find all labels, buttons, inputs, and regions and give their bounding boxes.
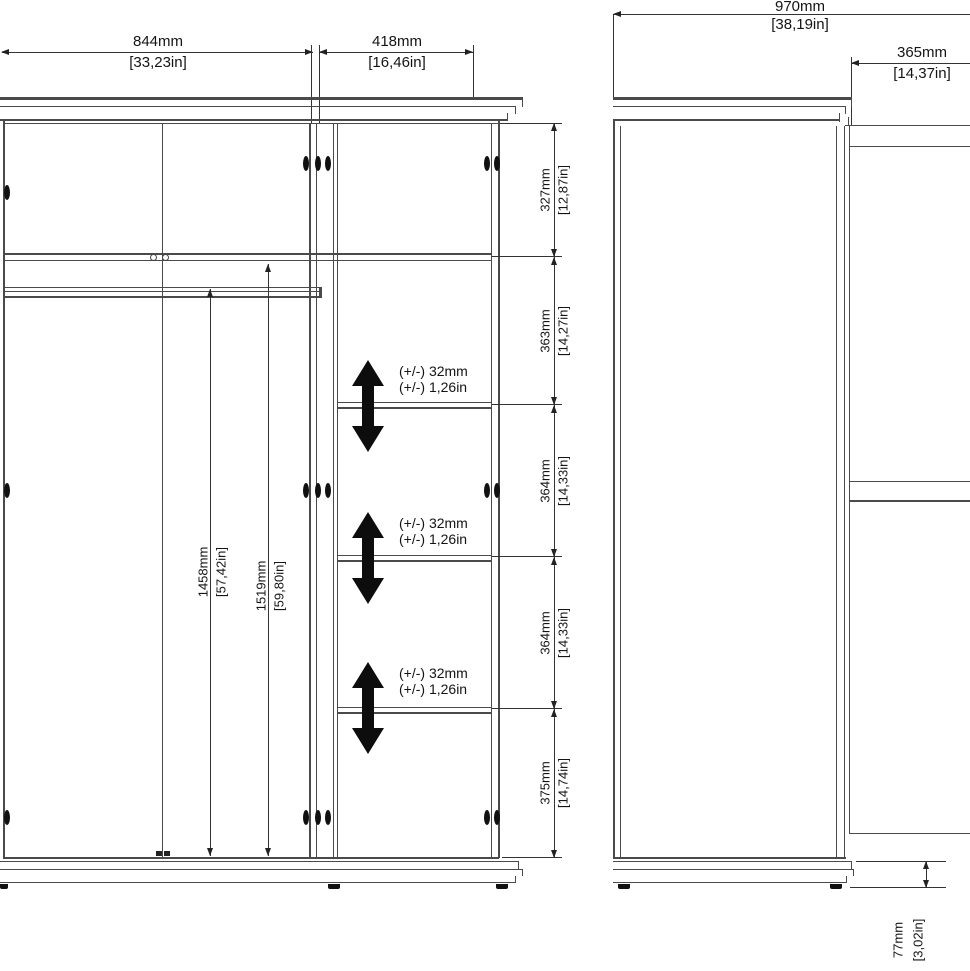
cornice-end [845, 106, 846, 114]
dim-970-line [613, 14, 970, 15]
side-panel-rear-edge [844, 126, 845, 858]
side-carcass-bottom [613, 857, 846, 859]
foot [830, 884, 842, 889]
dim-77-arrow-up [923, 861, 929, 869]
side-cornice-top [613, 97, 852, 100]
side-panel-front-inner [620, 126, 621, 858]
dim-77-arrow-down [923, 880, 929, 888]
plinth-end [846, 876, 847, 883]
plinth-line [613, 869, 854, 870]
side-cornice-mid [613, 106, 845, 107]
side-cornice-bottom [613, 119, 840, 121]
dim-77-mm-label: 77mm [891, 922, 906, 958]
ext-line [851, 57, 852, 126]
dim-365-in-label: [14,37in] [893, 66, 951, 83]
side-panel-rear-inner [836, 126, 837, 858]
ext-line [613, 14, 614, 97]
foot [618, 884, 630, 889]
plinth-end [851, 861, 852, 870]
rear-section-front-edge [849, 126, 850, 834]
dim-365-arrow-left [851, 60, 859, 66]
ext-line [850, 887, 946, 888]
rear-section-bottom [849, 833, 970, 834]
dim-365-line [851, 63, 970, 64]
ext-line [856, 861, 946, 862]
dim-365-mm-label: 365mm [897, 45, 947, 62]
wardrobe-technical-drawing: 844mm [33,23in] 418mm [16,46in] [0, 0, 970, 971]
cornice-end [839, 113, 840, 122]
rear-shelf-bottom [849, 500, 970, 502]
rear-section-top-face [845, 125, 970, 126]
plinth-end [853, 869, 854, 876]
dim-970-in-label: [38,19in] [771, 17, 829, 34]
cornice-end [851, 97, 852, 107]
side-view: 970mm [38,19in] 365mm [14,37in] [0, 0, 970, 971]
dim-970-arrow-left [613, 11, 621, 17]
plinth-line [613, 882, 847, 883]
rear-section-top-inner [849, 146, 970, 147]
dim-77-in-label: [3,02in] [911, 919, 926, 962]
side-panel-front-edge [613, 121, 615, 858]
rear-shelf-top [849, 481, 970, 482]
plinth-line [613, 861, 852, 862]
